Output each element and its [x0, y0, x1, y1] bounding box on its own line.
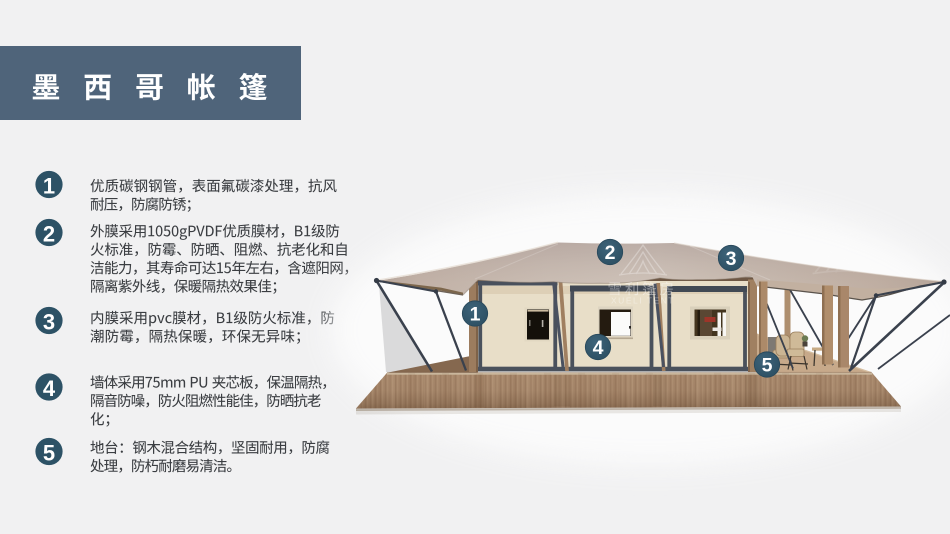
- svg-text:XUELI TENT: XUELI TENT: [611, 296, 675, 306]
- svg-text:5: 5: [762, 355, 773, 377]
- svg-text:4: 4: [593, 337, 604, 359]
- svg-text:3: 3: [43, 310, 55, 335]
- svg-text:4: 4: [43, 376, 56, 401]
- svg-text:1: 1: [470, 304, 481, 326]
- svg-text:2: 2: [43, 222, 55, 247]
- svg-text:2: 2: [605, 242, 616, 264]
- svg-text:3: 3: [726, 248, 737, 270]
- svg-text:5: 5: [43, 441, 55, 466]
- svg-text:1: 1: [43, 174, 55, 199]
